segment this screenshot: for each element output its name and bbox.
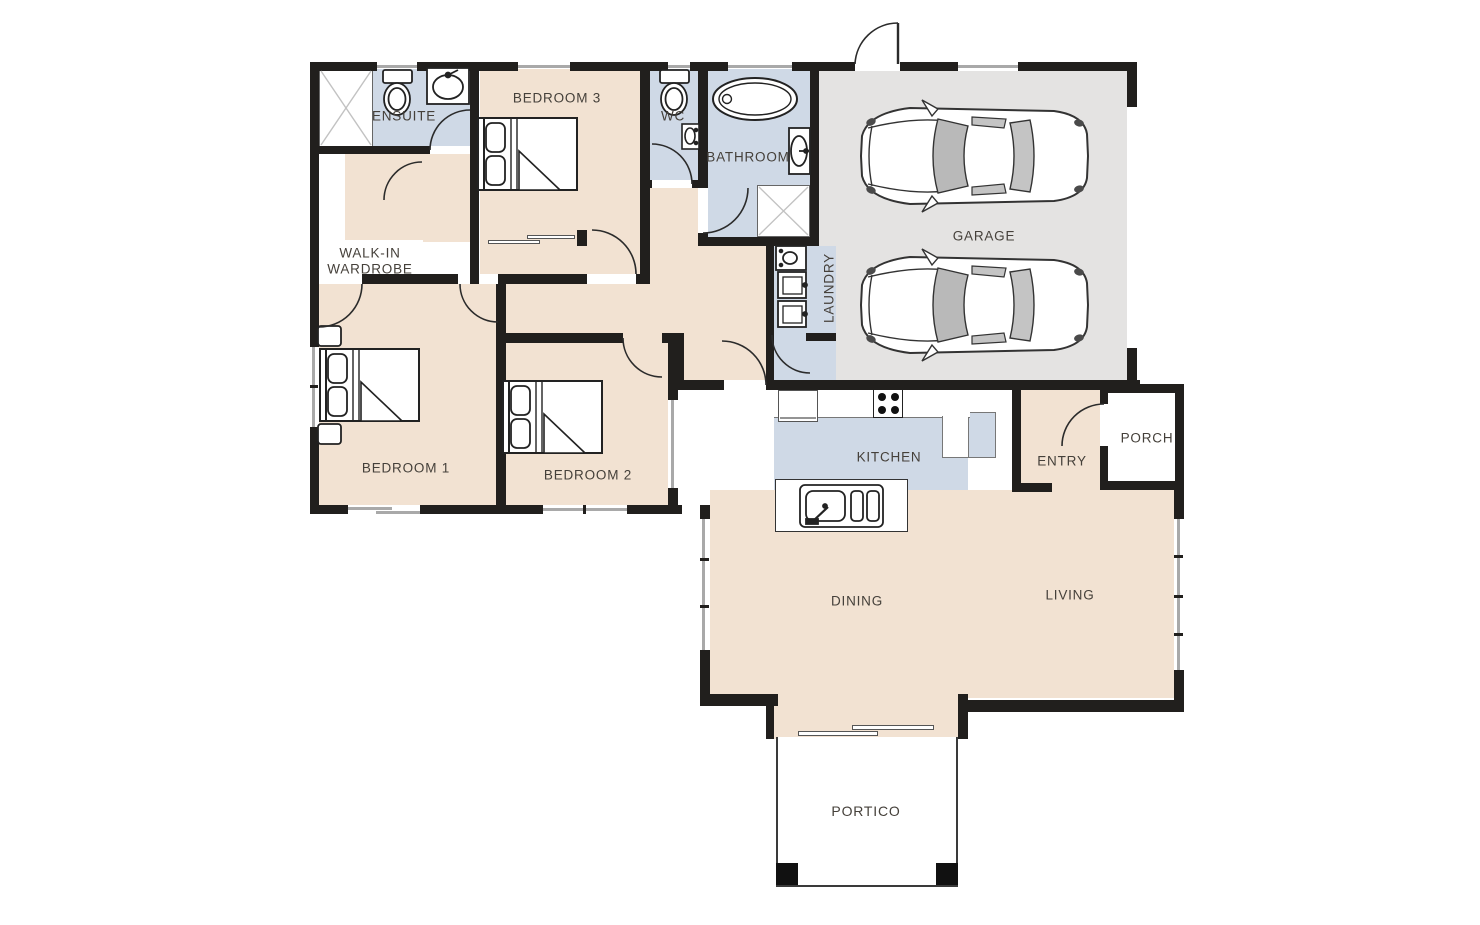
wall-entry-door-stub (1100, 446, 1108, 481)
wall (700, 650, 710, 706)
label-wiw: WALK-IN WARDROBE (310, 245, 430, 276)
label-dining: DINING (831, 594, 883, 609)
window-bathroom (728, 65, 792, 68)
wall (766, 243, 774, 390)
wall-ensuite-wiw (310, 146, 430, 154)
pantry (968, 412, 996, 458)
label-bedroom2: BEDROOM 2 (544, 468, 632, 483)
portico-post (936, 863, 958, 885)
entry-floor (1021, 390, 1100, 490)
wall-bump-right (958, 694, 968, 739)
wall (668, 488, 678, 514)
wall-garage-door-stub (1127, 62, 1137, 107)
wall (1012, 388, 1021, 490)
wall-laundry-stub (806, 333, 836, 341)
wall (1012, 483, 1052, 492)
wall (310, 62, 377, 71)
wall-porch-top (1100, 384, 1184, 393)
floor-plan: ENSUITE WALK-IN WARDROBE BEDROOM 3 WC BA… (0, 0, 1480, 925)
label-wc: WC (661, 109, 685, 124)
label-entry: ENTRY (1037, 454, 1087, 469)
wall (310, 427, 319, 514)
wall-wc-door-stub (692, 180, 700, 188)
wall (496, 284, 506, 514)
wall (792, 62, 855, 71)
wall (310, 505, 348, 514)
wall (310, 62, 319, 347)
label-kitchen: KITCHEN (857, 450, 922, 465)
door-garage-external (855, 23, 898, 64)
robe-sliding-door (527, 235, 575, 239)
wall-bump-left (766, 694, 774, 739)
window-tick (700, 605, 709, 608)
window-tick (1174, 633, 1183, 636)
window-ensuite (377, 65, 417, 68)
window-bedroom1 (348, 507, 392, 510)
label-bathroom: BATHROOM (706, 150, 789, 165)
wall (958, 700, 1184, 712)
label-garage: GARAGE (953, 229, 1016, 244)
wiw-floor (345, 154, 470, 242)
window-tick (1174, 555, 1183, 558)
wall (698, 62, 708, 188)
cooktop (873, 388, 903, 418)
wall-porch-right (1175, 384, 1184, 490)
wall (766, 380, 1140, 390)
portico-post (776, 863, 798, 885)
window-wc (668, 65, 690, 68)
wall (678, 380, 724, 390)
wall (1174, 481, 1184, 519)
window-dining (702, 519, 705, 650)
label-laundry: LAUNDRY (822, 253, 837, 323)
label-porch: PORCH (1121, 431, 1174, 446)
label-bedroom1: BEDROOM 1 (362, 461, 450, 476)
wall (700, 505, 710, 519)
wall (417, 62, 518, 71)
wall-bathroom-garage (810, 62, 819, 246)
garage-floor (818, 71, 1127, 380)
island-bench (775, 479, 908, 532)
wc-floor (650, 69, 698, 180)
label-bedroom3: BEDROOM 3 (513, 91, 601, 106)
window-tick (1174, 595, 1183, 598)
label-living: LIVING (1045, 588, 1094, 603)
wall (498, 274, 587, 284)
wall (640, 62, 650, 284)
label-portico: PORTICO (831, 803, 900, 819)
wc-corridor-floor (650, 188, 698, 246)
wall (900, 62, 958, 71)
window-bedroom3 (518, 65, 570, 68)
wall (1018, 62, 1131, 71)
wall (420, 505, 543, 514)
hall-corridor-floor (645, 246, 770, 284)
window-bedroom2-side (671, 400, 674, 488)
wall (690, 62, 728, 71)
shower-bathroom (757, 185, 810, 237)
window-bedroom1 (376, 511, 420, 514)
wall-entry-door-stub (1100, 393, 1108, 404)
window-garage (958, 65, 1018, 68)
shower-ensuite (319, 69, 373, 147)
window-tick (700, 558, 709, 561)
portico-sliding-door (852, 725, 934, 730)
robe-sliding-door (488, 240, 540, 244)
portico-sliding-door (798, 731, 878, 736)
wall (470, 62, 479, 284)
wall-robe-stub (577, 230, 587, 246)
wall (506, 333, 623, 343)
wall-porch-bottom (1100, 481, 1184, 490)
label-ensuite: ENSUITE (372, 109, 436, 124)
wall (698, 237, 818, 246)
window-tick (310, 385, 318, 388)
window-tick (583, 505, 586, 514)
kitchen-bench-return (942, 416, 968, 458)
wall (570, 62, 668, 71)
wall-wc-door-stub (640, 180, 652, 188)
fridge (778, 390, 818, 422)
